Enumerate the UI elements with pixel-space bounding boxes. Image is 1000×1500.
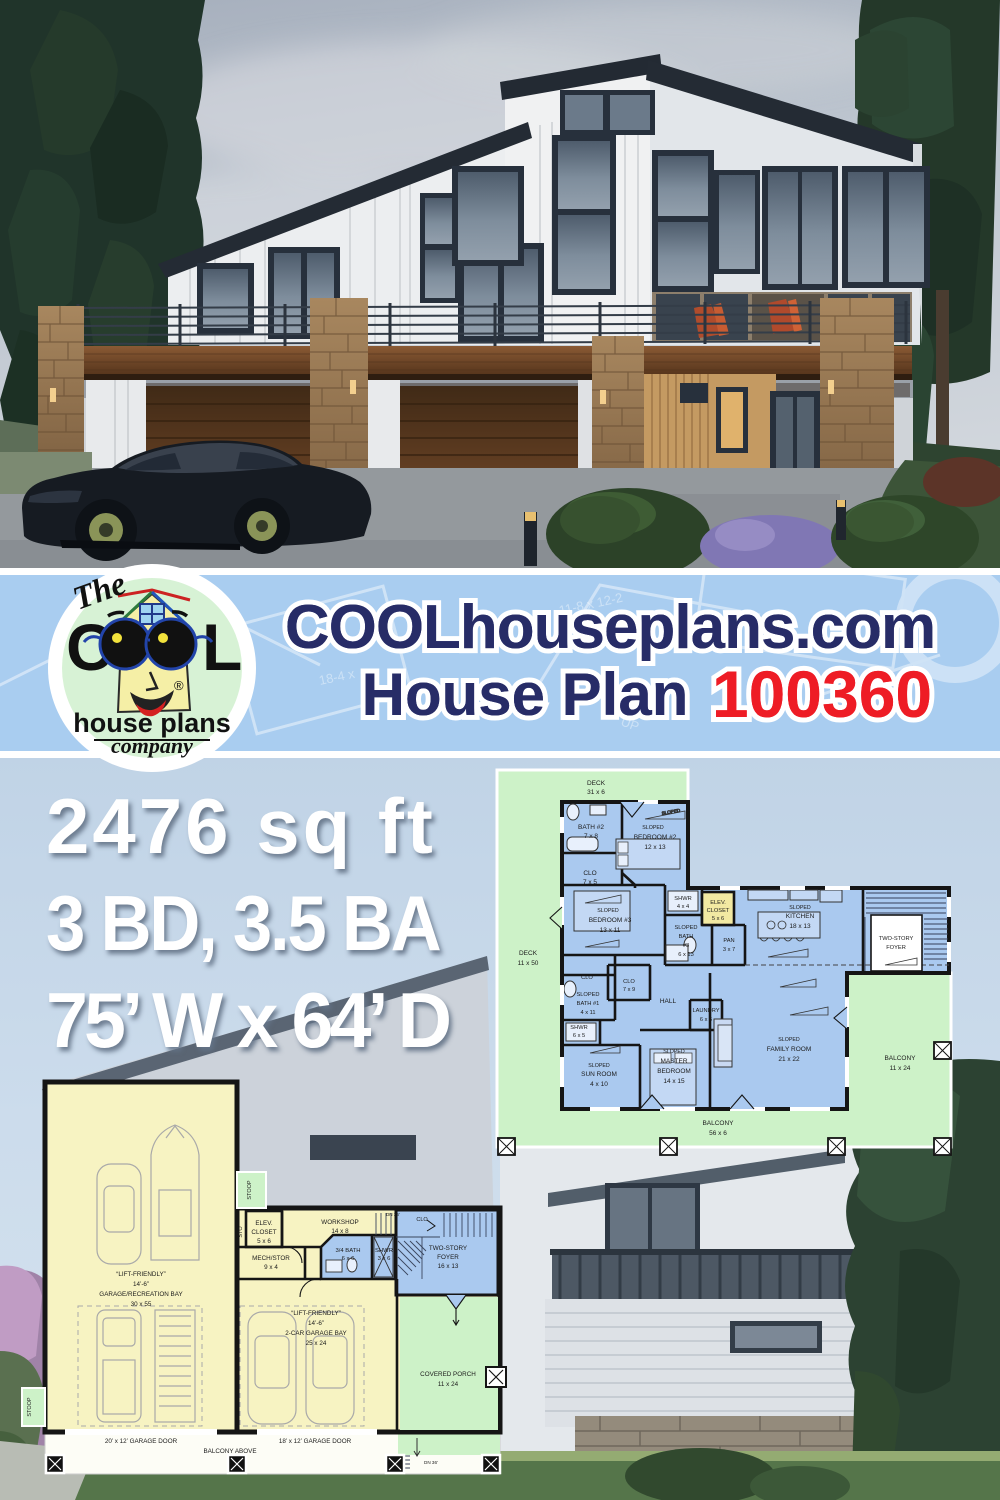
svg-text:4 x 10: 4 x 10 <box>590 1081 608 1088</box>
svg-text:31 x 6: 31 x 6 <box>587 789 605 796</box>
svg-text:SHWR: SHWR <box>570 1025 587 1031</box>
svg-text:BALCONY: BALCONY <box>884 1055 916 1062</box>
svg-text:FAMILY ROOM: FAMILY ROOM <box>767 1046 812 1053</box>
svg-text:House Plan: House Plan <box>362 661 689 728</box>
svg-text:6 x 6: 6 x 6 <box>342 1256 355 1262</box>
svg-text:4 x 11: 4 x 11 <box>580 1010 595 1016</box>
svg-text:SLOPED: SLOPED <box>663 1049 685 1055</box>
svg-text:BATH #1: BATH #1 <box>577 1001 600 1007</box>
svg-text:BATH: BATH <box>679 934 694 940</box>
svg-text:30 x 55: 30 x 55 <box>131 1301 152 1308</box>
svg-text:DECK: DECK <box>587 780 606 787</box>
svg-text:6 x 6: 6 x 6 <box>700 1017 712 1023</box>
svg-text:TWO-STORY: TWO-STORY <box>429 1245 468 1252</box>
svg-text:3 x 6: 3 x 6 <box>378 1256 391 1262</box>
svg-text:SLOPED: SLOPED <box>789 905 811 911</box>
svg-text:“LIFT-FRIENDLY”: “LIFT-FRIENDLY” <box>116 1271 166 1278</box>
svg-text:25 x 24: 25 x 24 <box>306 1340 327 1347</box>
svg-text:KITCHEN: KITCHEN <box>786 913 815 920</box>
svg-text:11 x 24: 11 x 24 <box>438 1381 459 1388</box>
svg-text:CLOSET: CLOSET <box>251 1229 276 1236</box>
svg-text:LAUNDRY: LAUNDRY <box>692 1008 719 1014</box>
svg-text:SUN ROOM: SUN ROOM <box>581 1071 617 1078</box>
svg-text:56 x 6: 56 x 6 <box>709 1130 727 1137</box>
svg-text:COVERED PORCH: COVERED PORCH <box>420 1371 476 1378</box>
svg-text:FOYER: FOYER <box>886 945 906 951</box>
svg-text:ELEV.: ELEV. <box>255 1220 273 1227</box>
svg-text:MASTER: MASTER <box>660 1058 687 1065</box>
svg-text:MECH/STOR: MECH/STOR <box>252 1255 290 1262</box>
svg-text:11 x 50: 11 x 50 <box>518 960 539 967</box>
svg-text:CLO: CLO <box>583 870 596 877</box>
svg-text:DN 36’: DN 36’ <box>424 1460 438 1465</box>
svg-text:2-CAR GARAGE BAY: 2-CAR GARAGE BAY <box>285 1330 347 1337</box>
svg-text:GARAGE/RECREATION BAY: GARAGE/RECREATION BAY <box>99 1291 183 1298</box>
svg-text:12 x 13: 12 x 13 <box>644 844 666 851</box>
svg-text:7 x 9: 7 x 9 <box>623 987 635 993</box>
svg-text:14 x 8: 14 x 8 <box>331 1228 349 1235</box>
svg-text:100360: 100360 <box>712 657 932 731</box>
svg-text:SLOPED: SLOPED <box>642 825 664 831</box>
svg-text:20’ x 12’ GARAGE DOOR: 20’ x 12’ GARAGE DOOR <box>105 1438 178 1445</box>
svg-text:21 x 22: 21 x 22 <box>778 1056 800 1063</box>
svg-text:SLOPED: SLOPED <box>597 908 619 914</box>
svg-text:ELEV.: ELEV. <box>710 900 726 906</box>
svg-text:“LIFT-FRIENDLY”: “LIFT-FRIENDLY” <box>291 1310 341 1317</box>
svg-text:CLO: CLO <box>581 975 593 981</box>
svg-text:7 x 8: 7 x 8 <box>584 833 598 840</box>
svg-text:®: ® <box>174 678 184 693</box>
svg-text:14’-6”: 14’-6” <box>308 1320 324 1327</box>
svg-text:6 x 5: 6 x 5 <box>573 1033 585 1039</box>
svg-text:company: company <box>111 733 193 758</box>
svg-text:SLOPED: SLOPED <box>674 925 697 931</box>
svg-text:7 x 5: 7 x 5 <box>583 879 597 886</box>
svg-text:3/4 BATH: 3/4 BATH <box>335 1248 360 1254</box>
svg-text:9 x 4: 9 x 4 <box>264 1264 278 1271</box>
svg-text:#3: #3 <box>683 943 689 949</box>
svg-text:TWO-STORY: TWO-STORY <box>879 936 914 942</box>
svg-text:18’ x 12’ GARAGE DOOR: 18’ x 12’ GARAGE DOOR <box>279 1438 352 1445</box>
svg-text:SLOPED: SLOPED <box>576 992 599 998</box>
svg-text:BEDROOM #3: BEDROOM #3 <box>589 917 632 924</box>
svg-text:FOYER: FOYER <box>437 1254 459 1261</box>
svg-text:SLOPED: SLOPED <box>778 1037 800 1043</box>
svg-text:SHWR: SHWR <box>375 1248 393 1254</box>
svg-text:3 x 7: 3 x 7 <box>723 947 735 953</box>
svg-text:STOOP: STOOP <box>247 1180 253 1199</box>
svg-text:18 x 13: 18 x 13 <box>789 923 811 930</box>
svg-text:11 x 24: 11 x 24 <box>890 1065 911 1072</box>
svg-text:HALL: HALL <box>660 998 677 1005</box>
svg-text:SLOPED: SLOPED <box>588 1063 610 1069</box>
svg-text:BALCONY: BALCONY <box>702 1120 734 1127</box>
svg-text:WORKSHOP: WORKSHOP <box>321 1219 358 1226</box>
svg-text:BEDROOM: BEDROOM <box>657 1068 691 1075</box>
svg-text:PAN: PAN <box>723 938 734 944</box>
svg-text:COOLhouseplans.com: COOLhouseplans.com <box>285 593 935 662</box>
svg-text:DN 36’: DN 36’ <box>386 1212 400 1217</box>
svg-text:CLO: CLO <box>416 1217 428 1223</box>
svg-text:DECK: DECK <box>519 950 538 957</box>
svg-text:CLOSET: CLOSET <box>707 908 730 914</box>
svg-text:13 x 11: 13 x 11 <box>600 927 621 934</box>
svg-text:CLO: CLO <box>623 979 635 985</box>
svg-text:5 x 6: 5 x 6 <box>712 916 724 922</box>
svg-text:STOOP: STOOP <box>27 1397 33 1416</box>
svg-text:16 x 13: 16 x 13 <box>438 1263 459 1270</box>
svg-text:14’-6”: 14’-6” <box>133 1281 149 1288</box>
svg-text:BATH #2: BATH #2 <box>578 824 604 831</box>
svg-text:SHWR: SHWR <box>674 896 691 902</box>
svg-text:6 x 13: 6 x 13 <box>678 952 694 958</box>
svg-text:STO: STO <box>238 1226 244 1238</box>
svg-text:5 x 6: 5 x 6 <box>257 1238 271 1245</box>
svg-text:L: L <box>202 610 242 684</box>
svg-text:14 x 15: 14 x 15 <box>663 1078 685 1085</box>
svg-text:4 x 4: 4 x 4 <box>677 904 689 910</box>
svg-text:BEDROOM #2: BEDROOM #2 <box>634 834 677 841</box>
